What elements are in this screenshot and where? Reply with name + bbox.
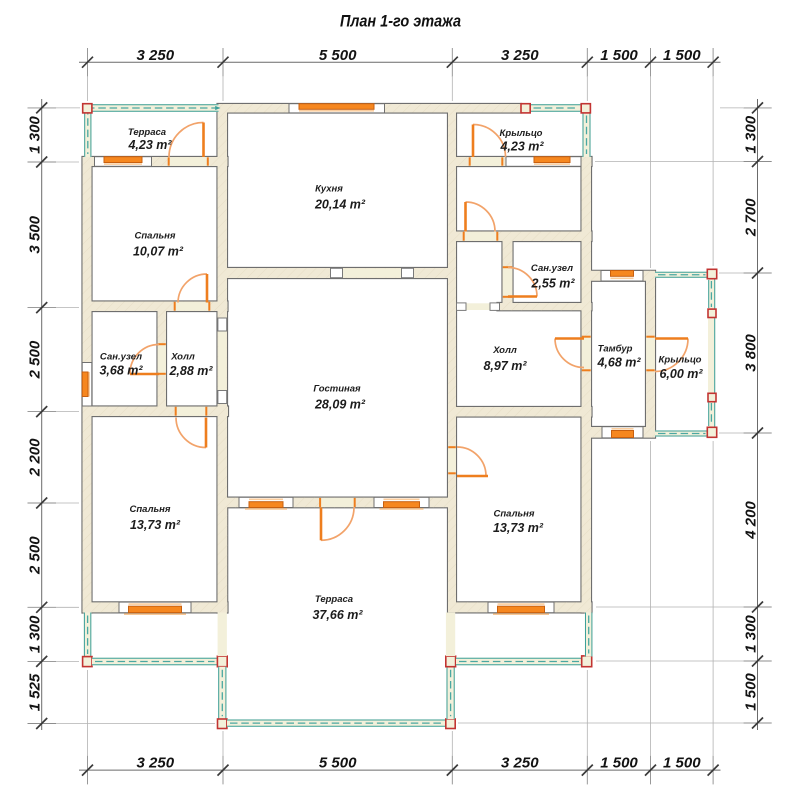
svg-text:13,73 m²: 13,73 m² bbox=[493, 521, 544, 535]
svg-text:2 500: 2 500 bbox=[27, 340, 44, 379]
svg-text:37,66 m²: 37,66 m² bbox=[312, 608, 363, 622]
svg-text:1 500: 1 500 bbox=[663, 47, 701, 64]
svg-text:1 300: 1 300 bbox=[743, 615, 760, 653]
svg-text:Тамбур: Тамбур bbox=[598, 344, 633, 355]
svg-text:Сан.узел: Сан.узел bbox=[531, 263, 573, 274]
svg-text:1 300: 1 300 bbox=[27, 615, 44, 653]
svg-text:5 500: 5 500 bbox=[319, 754, 357, 771]
svg-text:Спальня: Спальня bbox=[494, 509, 535, 520]
svg-text:1 500: 1 500 bbox=[663, 754, 701, 771]
svg-text:28,09 m²: 28,09 m² bbox=[314, 398, 366, 412]
svg-text:1 500: 1 500 bbox=[743, 673, 760, 711]
svg-text:4,23 m²: 4,23 m² bbox=[499, 140, 544, 154]
svg-text:4 200: 4 200 bbox=[743, 501, 760, 540]
svg-text:2,55 m²: 2,55 m² bbox=[530, 277, 575, 291]
svg-text:План 1-го этажа: План 1-го этажа bbox=[340, 13, 461, 31]
svg-text:Сан.узел: Сан.узел bbox=[100, 352, 142, 363]
svg-text:3 250: 3 250 bbox=[501, 754, 539, 771]
svg-text:4,68 m²: 4,68 m² bbox=[596, 356, 641, 370]
svg-text:Терраса: Терраса bbox=[315, 594, 353, 605]
svg-text:3,68 m²: 3,68 m² bbox=[99, 364, 143, 378]
svg-text:2 700: 2 700 bbox=[743, 198, 760, 237]
svg-text:5 500: 5 500 bbox=[319, 47, 357, 64]
svg-text:Спальня: Спальня bbox=[130, 504, 171, 515]
svg-text:3 250: 3 250 bbox=[501, 47, 539, 64]
svg-text:1 500: 1 500 bbox=[600, 754, 638, 771]
svg-text:13,73 m²: 13,73 m² bbox=[130, 518, 181, 532]
svg-text:Крыльцо: Крыльцо bbox=[659, 355, 702, 366]
svg-text:2 500: 2 500 bbox=[27, 536, 44, 575]
svg-text:3 250: 3 250 bbox=[137, 754, 175, 771]
svg-text:1 300: 1 300 bbox=[743, 115, 760, 153]
svg-text:2 200: 2 200 bbox=[27, 438, 44, 477]
svg-text:10,07 m²: 10,07 m² bbox=[133, 245, 184, 259]
svg-text:4,23 m²: 4,23 m² bbox=[127, 138, 172, 152]
svg-text:Холл: Холл bbox=[492, 345, 517, 356]
svg-text:Терраса: Терраса bbox=[128, 127, 166, 138]
svg-text:3 250: 3 250 bbox=[137, 47, 175, 64]
svg-text:Гостиная: Гостиная bbox=[313, 384, 361, 395]
svg-text:1 300: 1 300 bbox=[27, 116, 44, 154]
svg-text:Кухня: Кухня bbox=[315, 184, 343, 195]
svg-text:1 525: 1 525 bbox=[27, 673, 44, 711]
svg-text:3 500: 3 500 bbox=[27, 215, 44, 253]
svg-text:Спальня: Спальня bbox=[135, 231, 176, 242]
svg-text:20,14 m²: 20,14 m² bbox=[314, 198, 366, 212]
svg-text:8,97 m²: 8,97 m² bbox=[483, 359, 527, 373]
svg-text:Крыльцо: Крыльцо bbox=[500, 128, 543, 139]
svg-text:Холл: Холл bbox=[170, 352, 195, 363]
svg-text:6,00 m²: 6,00 m² bbox=[659, 367, 703, 381]
svg-text:2,88 m²: 2,88 m² bbox=[168, 364, 213, 378]
svg-text:3 800: 3 800 bbox=[743, 334, 760, 372]
svg-text:1 500: 1 500 bbox=[600, 47, 638, 64]
